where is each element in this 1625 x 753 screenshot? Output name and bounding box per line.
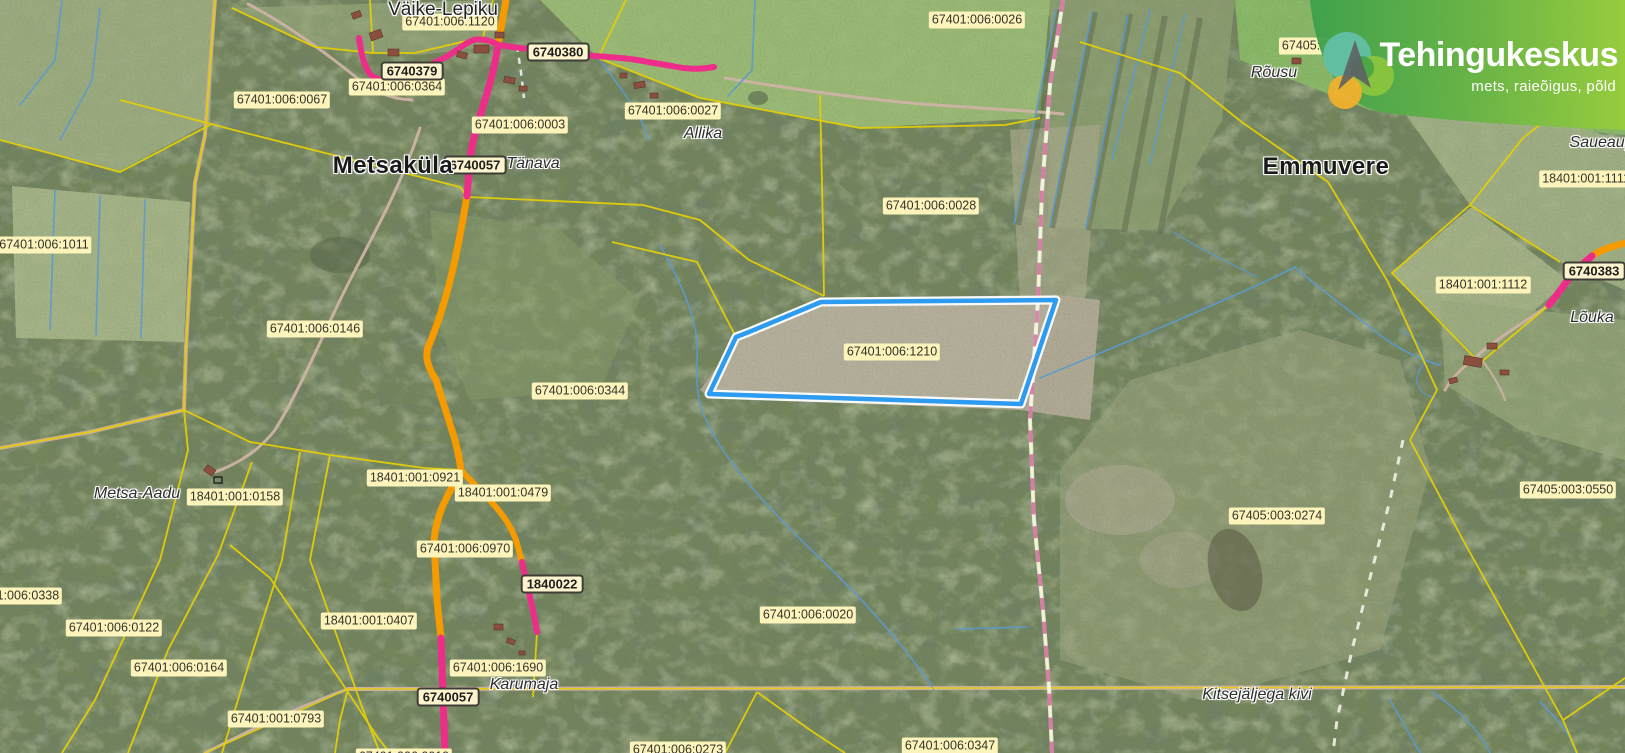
brand-subtitle: mets, raieõigus, põld xyxy=(1471,78,1616,95)
brand-logo[interactable]: Tehingukeskus mets, raieõigus, põld xyxy=(1280,0,1625,150)
brand-title: Tehingukeskus xyxy=(1380,36,1619,75)
logo-graphic xyxy=(1280,0,1625,150)
map-canvas[interactable]: 67401:006:112067401:006:036467401:006:00… xyxy=(0,0,1625,753)
